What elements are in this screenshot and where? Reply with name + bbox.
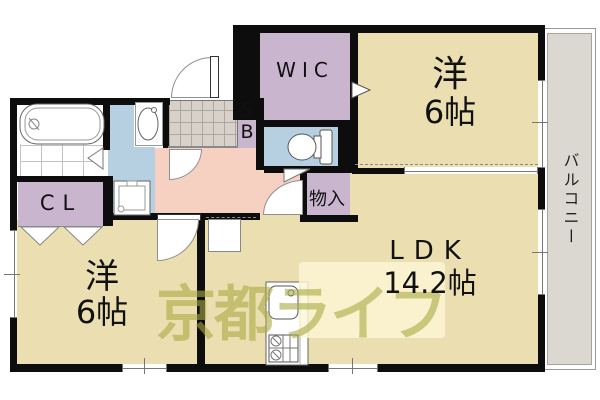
western-top-name: 洋	[390, 56, 510, 94]
storage-label: 物入	[303, 191, 351, 210]
wall	[256, 98, 264, 170]
window	[328, 364, 378, 372]
wall	[10, 176, 110, 182]
toilet-icon	[287, 128, 335, 166]
sliding-partition	[404, 167, 538, 174]
wall	[538, 168, 545, 209]
window-tick	[532, 252, 548, 253]
balcony-floor: バルコニー	[547, 33, 592, 365]
ldk-name: LDK	[355, 238, 505, 265]
fridge-space	[208, 219, 241, 252]
window-tick	[352, 358, 353, 374]
window-tick	[532, 122, 548, 123]
wall	[338, 120, 350, 167]
window-tick	[144, 358, 145, 374]
western-bottom-name: 洋	[42, 260, 162, 296]
fridge-dashed-line	[206, 217, 256, 218]
floor-plan: バルコニー	[0, 0, 600, 400]
window	[538, 80, 545, 168]
ldk-size: 14.2帖	[352, 268, 508, 298]
bath-door-icon	[85, 146, 105, 171]
washbasin-icon	[135, 102, 163, 146]
western-top-size: 6帖	[390, 96, 510, 130]
entrance-door-leaf	[210, 56, 219, 98]
closet-label: CL	[18, 192, 104, 214]
wic-door-icon	[351, 81, 373, 101]
wall	[300, 215, 358, 222]
closet-door-icon	[19, 226, 104, 247]
wall	[538, 295, 545, 372]
western-bottom-size: 6帖	[42, 296, 162, 330]
shoebox-label-b: B	[237, 123, 257, 143]
washing-machine-icon	[113, 180, 151, 216]
entrance-door-arc	[171, 57, 212, 98]
wic-label: WIC	[258, 60, 352, 81]
balcony: バルコニー	[543, 28, 596, 370]
wall	[352, 168, 404, 174]
entrance-step-line	[168, 146, 238, 148]
bathtub-icon	[19, 103, 105, 145]
toilet-door-icon	[283, 168, 311, 183]
wall	[538, 25, 545, 80]
hanging-wall-dashed-line	[355, 164, 538, 165]
wall	[163, 98, 169, 148]
shoebox-label-s: S	[237, 101, 257, 121]
window-tick	[4, 274, 20, 275]
balcony-label: バルコニー	[558, 152, 582, 247]
entrance-tiles	[168, 100, 238, 148]
wall	[256, 25, 545, 33]
